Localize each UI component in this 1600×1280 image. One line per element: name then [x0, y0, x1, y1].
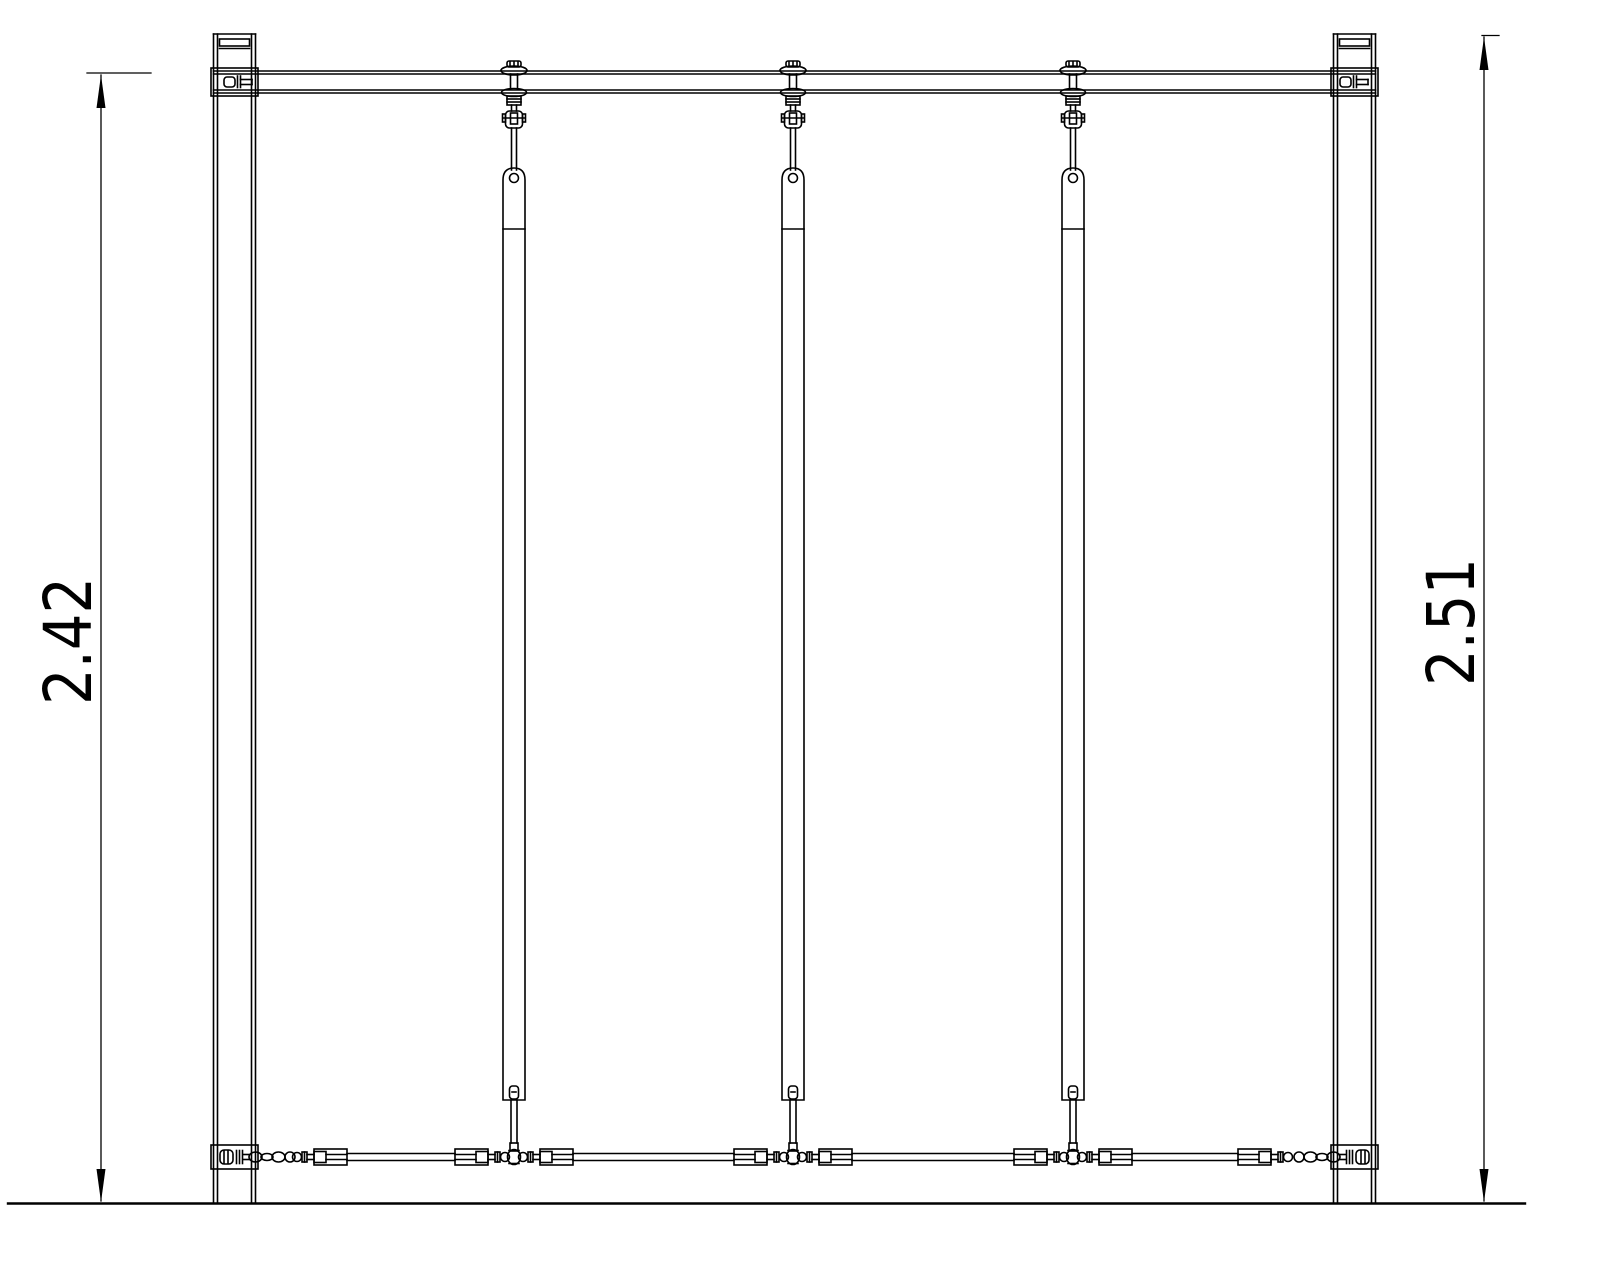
hanger-assembly-1 [501, 61, 527, 1165]
hanger-assembly-3 [1060, 61, 1086, 1165]
dimension-right-arrow-up [1480, 37, 1489, 70]
right-post [1334, 34, 1376, 1202]
right-post-cap [1340, 39, 1370, 49]
turnbuckle-5 [798, 1149, 853, 1165]
hanger-assembly-2 [780, 61, 806, 1165]
turnbuckle-6 [1014, 1149, 1069, 1165]
dimension-left-arrow-up [97, 75, 106, 108]
tie-rod-segment-4 [1132, 1154, 1238, 1161]
beam-bolt-right [1340, 76, 1368, 88]
bottom-tension-assembly [211, 1145, 1378, 1169]
beam-bolt-left [224, 76, 252, 88]
dimension-left: 2.42 [30, 73, 151, 1202]
dimension-left-label: 2.42 [30, 577, 107, 705]
tie-rod-segment-2 [573, 1154, 734, 1161]
turnbuckle-7 [1078, 1149, 1133, 1165]
dimension-left-arrow-down [97, 1169, 106, 1202]
turnbuckle-1 [293, 1149, 348, 1165]
turnbuckle-3 [519, 1149, 574, 1165]
frame-elevation-drawing: 2.42 2.51 [0, 0, 1600, 1280]
technical-drawing-canvas: 2.42 2.51 [0, 0, 1600, 1280]
dimension-right-arrow-down [1480, 1169, 1489, 1202]
tie-rod-segment-1 [347, 1154, 455, 1161]
turnbuckle-8 [1238, 1149, 1293, 1165]
left-post-cap [220, 39, 250, 49]
dimension-right: 2.51 [1413, 36, 1499, 1203]
dimension-right-label: 2.51 [1413, 558, 1490, 686]
turnbuckle-4 [734, 1149, 789, 1165]
left-post [214, 34, 256, 1202]
turnbuckle-2 [455, 1149, 510, 1165]
tie-rod-segment-3 [852, 1154, 1014, 1161]
